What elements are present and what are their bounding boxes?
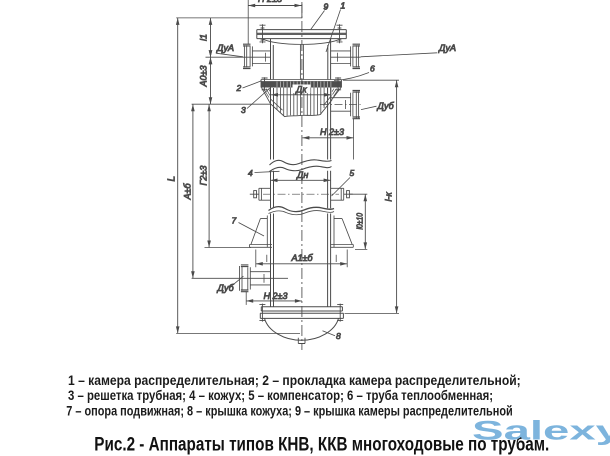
svg-text:7: 7 xyxy=(232,216,237,226)
svg-text:ДуА: ДуА xyxy=(216,43,234,53)
svg-text:1 – камера распределительная;: 1 – камера распределительная; 2 – прокла… xyxy=(68,372,521,388)
svg-text:7 – опора подвижная; 8 – крышк: 7 – опора подвижная; 8 – крышка кожуха; … xyxy=(66,403,512,419)
svg-text:1: 1 xyxy=(341,1,346,11)
svg-text:Н 2±3: Н 2±3 xyxy=(320,127,344,137)
svg-text:8: 8 xyxy=(336,331,341,341)
svg-text:А0±3: А0±3 xyxy=(199,66,209,88)
svg-text:l0±10: l0±10 xyxy=(356,213,365,230)
svg-text:Н 2±3: Н 2±3 xyxy=(264,291,288,301)
svg-text:3 – решетка трубная; 4 – кожух: 3 – решетка трубная; 4 – кожух; 5 – комп… xyxy=(68,387,493,403)
svg-text:Дк: Дк xyxy=(295,84,307,94)
svg-text:l-к: l-к xyxy=(384,192,394,202)
svg-text:Г2±3: Г2±3 xyxy=(198,166,208,186)
svg-text:А1±б: А1±б xyxy=(291,253,314,263)
svg-text:Дн: Дн xyxy=(296,170,308,180)
svg-text:6: 6 xyxy=(370,64,375,74)
svg-text:Salexy: Salexy xyxy=(472,415,610,445)
svg-text:3: 3 xyxy=(241,105,246,115)
svg-text:l1: l1 xyxy=(199,34,209,41)
svg-text:5: 5 xyxy=(350,168,355,178)
svg-text:4: 4 xyxy=(248,168,253,178)
svg-text:ДуА: ДуА xyxy=(438,43,456,53)
svg-text:Н 2±3: Н 2±3 xyxy=(258,0,282,4)
svg-text:А±б: А±б xyxy=(183,183,193,201)
svg-text:2: 2 xyxy=(236,83,242,93)
svg-text:L: L xyxy=(167,176,178,182)
svg-text:9: 9 xyxy=(324,2,329,12)
svg-text:Дуб: Дуб xyxy=(217,283,235,293)
svg-text:Дуб: Дуб xyxy=(377,101,395,111)
